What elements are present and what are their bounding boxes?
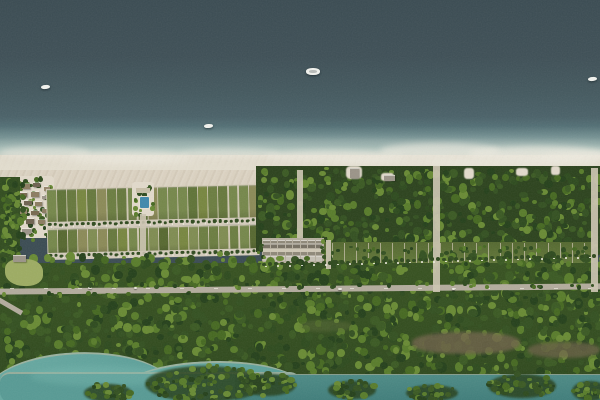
boat xyxy=(588,77,597,82)
yacht xyxy=(306,68,320,75)
boat xyxy=(41,85,50,90)
yacht-deck xyxy=(309,70,317,73)
boats-layer xyxy=(0,0,600,400)
aerial-masterplan-render xyxy=(0,0,600,400)
boat xyxy=(204,124,213,129)
